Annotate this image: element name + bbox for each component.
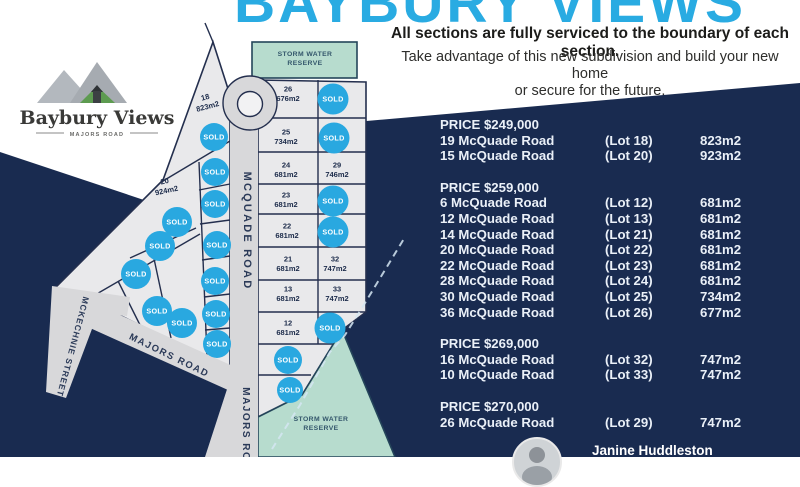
sold-badge: SOLD xyxy=(277,377,303,403)
sold-badge-text: SOLD xyxy=(206,340,227,349)
sold-badge-text: SOLD xyxy=(203,133,224,142)
price-header: PRICE $249,000 xyxy=(440,117,785,133)
lot-size: 681m2 xyxy=(700,227,785,243)
lot-number: 33 xyxy=(333,285,341,294)
sold-badge: SOLD xyxy=(201,190,229,218)
sold-badge-text: SOLD xyxy=(146,307,167,316)
road-label: MCQUADE ROAD xyxy=(241,172,253,291)
sold-badge-text: SOLD xyxy=(322,197,343,206)
lot-id: (Lot 26) xyxy=(605,305,700,321)
sold-badge-text: SOLD xyxy=(204,277,225,286)
lot-id: (Lot 18) xyxy=(605,133,700,149)
lot-id: (Lot 21) xyxy=(605,227,700,243)
sold-badge: SOLD xyxy=(318,217,349,248)
agent-card: Janine Huddleston xyxy=(512,437,713,487)
lot-size: 923m2 xyxy=(700,148,785,164)
sold-badge-text: SOLD xyxy=(166,218,187,227)
price-row: 16 McQuade Road(Lot 32)747m2 xyxy=(440,352,785,368)
lot-address: 10 McQuade Road xyxy=(440,367,605,383)
lot-area: 747m2 xyxy=(323,264,346,273)
reserve-label-line1: STORM WATER xyxy=(294,416,349,423)
lot-address: 22 McQuade Road xyxy=(440,258,605,274)
lot-size: 681m2 xyxy=(700,242,785,258)
price-section: PRICE $270,00026 McQuade Road(Lot 29)747… xyxy=(440,399,785,430)
price-header: PRICE $259,000 xyxy=(440,180,785,196)
lot-size: 823m2 xyxy=(700,133,785,149)
lot-address: 16 McQuade Road xyxy=(440,352,605,368)
lot-address: 36 McQuade Road xyxy=(440,305,605,321)
reserve-label-line2: RESERVE xyxy=(303,425,338,432)
lot-address: 14 McQuade Road xyxy=(440,227,605,243)
lot-area: 676m2 xyxy=(276,94,299,103)
price-row: 19 McQuade Road(Lot 18)823m2 xyxy=(440,133,785,149)
lot-address: 30 McQuade Road xyxy=(440,289,605,305)
sold-badge: SOLD xyxy=(201,158,229,186)
lot-number: 25 xyxy=(282,128,290,137)
lot-id: (Lot 33) xyxy=(605,367,700,383)
lot-size: 681m2 xyxy=(700,195,785,211)
lot-area: 681m2 xyxy=(275,231,298,240)
lot-area: 747m2 xyxy=(325,294,348,303)
reserve-label-line1: STORM WATER xyxy=(278,51,333,58)
price-section: PRICE $259,0006 McQuade Road(Lot 12)681m… xyxy=(440,180,785,320)
price-row: 20 McQuade Road(Lot 22)681m2 xyxy=(440,242,785,258)
lot-number: 21 xyxy=(284,255,292,264)
road-bend xyxy=(205,380,230,457)
lot-size: 681m2 xyxy=(700,273,785,289)
lot-size: 681m2 xyxy=(700,211,785,227)
lot-number: 23 xyxy=(282,191,290,200)
lot-size: 734m2 xyxy=(700,289,785,305)
lot-area: 734m2 xyxy=(274,137,297,146)
lot-number: 26 xyxy=(284,85,292,94)
sold-badge: SOLD xyxy=(319,123,350,154)
lot-address: 19 McQuade Road xyxy=(440,133,605,149)
lot-number: 22 xyxy=(283,222,291,231)
sold-badge: SOLD xyxy=(315,313,346,344)
lot-number: 12 xyxy=(284,319,292,328)
sold-badge-text: SOLD xyxy=(204,200,225,209)
price-row: 15 McQuade Road(Lot 20)923m2 xyxy=(440,148,785,164)
sold-badge: SOLD xyxy=(201,267,229,295)
sold-badge: SOLD xyxy=(145,231,175,261)
lot-id: (Lot 13) xyxy=(605,211,700,227)
lot-area: 681m2 xyxy=(276,328,299,337)
sold-badge: SOLD xyxy=(203,231,231,259)
lot-size: 677m2 xyxy=(700,305,785,321)
sold-badge: SOLD xyxy=(318,186,349,217)
sold-badge: SOLD xyxy=(203,330,231,358)
culdesac-island xyxy=(238,92,263,117)
sold-badge-text: SOLD xyxy=(319,324,340,333)
lot-area: 681m2 xyxy=(276,264,299,273)
price-section: PRICE $249,00019 McQuade Road(Lot 18)823… xyxy=(440,117,785,164)
sold-badge-text: SOLD xyxy=(277,356,298,365)
sold-badge-text: SOLD xyxy=(149,242,170,251)
price-row: 26 McQuade Road(Lot 29)747m2 xyxy=(440,415,785,431)
sold-badge-text: SOLD xyxy=(323,134,344,143)
lot-address: 20 McQuade Road xyxy=(440,242,605,258)
lot-address: 26 McQuade Road xyxy=(440,415,605,431)
lot-number: 29 xyxy=(333,161,341,170)
lot-address: 15 McQuade Road xyxy=(440,148,605,164)
lot-id: (Lot 29) xyxy=(605,415,700,431)
price-row: 30 McQuade Road(Lot 25)734m2 xyxy=(440,289,785,305)
agent-name: Janine Huddleston xyxy=(592,443,713,458)
sold-badge: SOLD xyxy=(200,123,228,151)
lot-number: 13 xyxy=(284,285,292,294)
lot-size: 747m2 xyxy=(700,415,785,431)
price-row: 10 McQuade Road(Lot 33)747m2 xyxy=(440,367,785,383)
price-row: 6 McQuade Road(Lot 12)681m2 xyxy=(440,195,785,211)
lot-id: (Lot 12) xyxy=(605,195,700,211)
sold-badge-text: SOLD xyxy=(171,319,192,328)
agent-avatar xyxy=(512,437,562,487)
price-row: 22 McQuade Road(Lot 23)681m2 xyxy=(440,258,785,274)
lot-area: 681m2 xyxy=(274,200,297,209)
lot-address: 12 McQuade Road xyxy=(440,211,605,227)
boundary-tick-line xyxy=(205,23,213,42)
lot-area: 681m2 xyxy=(276,294,299,303)
lot-id: (Lot 32) xyxy=(605,352,700,368)
lot-address: 6 McQuade Road xyxy=(440,195,605,211)
lot-id: (Lot 23) xyxy=(605,258,700,274)
price-list: PRICE $249,00019 McQuade Road(Lot 18)823… xyxy=(440,117,785,446)
lot-size: 747m2 xyxy=(700,367,785,383)
lot-address: 28 McQuade Road xyxy=(440,273,605,289)
lot-id: (Lot 25) xyxy=(605,289,700,305)
price-header: PRICE $269,000 xyxy=(440,336,785,352)
sold-badge: SOLD xyxy=(318,84,349,115)
price-row: 14 McQuade Road(Lot 21)681m2 xyxy=(440,227,785,243)
lot-area: 681m2 xyxy=(274,170,297,179)
sold-badge-text: SOLD xyxy=(322,95,343,104)
price-row: 12 McQuade Road(Lot 13)681m2 xyxy=(440,211,785,227)
road-label: MAJORS ROAD xyxy=(240,387,251,457)
reserve-label-line2: RESERVE xyxy=(287,60,322,67)
lot-id: (Lot 20) xyxy=(605,148,700,164)
sold-badge-text: SOLD xyxy=(279,386,300,395)
sold-badge: SOLD xyxy=(274,346,302,374)
price-header: PRICE $270,000 xyxy=(440,399,785,415)
sold-badge-text: SOLD xyxy=(204,168,225,177)
sold-badge-text: SOLD xyxy=(322,228,343,237)
sold-badge: SOLD xyxy=(202,300,230,328)
sold-badge: SOLD xyxy=(167,308,197,338)
price-row: 28 McQuade Road(Lot 24)681m2 xyxy=(440,273,785,289)
lot-size: 681m2 xyxy=(700,258,785,274)
sold-badge-text: SOLD xyxy=(206,241,227,250)
lot-area: 746m2 xyxy=(325,170,348,179)
lot-number: 24 xyxy=(282,161,291,170)
sold-badge-text: SOLD xyxy=(205,310,226,319)
sold-badge-text: SOLD xyxy=(125,270,146,279)
price-section: PRICE $269,00016 McQuade Road(Lot 32)747… xyxy=(440,336,785,383)
lot-id: (Lot 24) xyxy=(605,273,700,289)
price-row: 36 McQuade Road(Lot 26)677m2 xyxy=(440,305,785,321)
sold-badge: SOLD xyxy=(121,259,151,289)
lot-size: 747m2 xyxy=(700,352,785,368)
lot-number: 32 xyxy=(331,255,339,264)
lot-id: (Lot 22) xyxy=(605,242,700,258)
